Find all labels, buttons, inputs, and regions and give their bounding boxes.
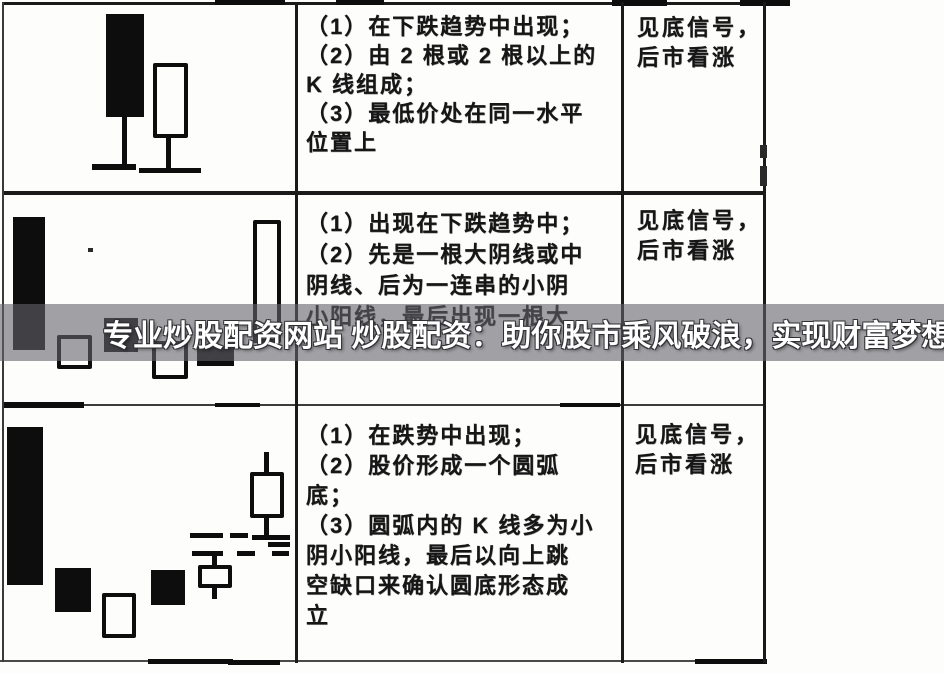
text-line: 阴线、后为一连串的小阴	[306, 270, 621, 301]
text-line: （3）圆弧内的 K 线多为小	[306, 511, 621, 541]
candle-wick	[264, 518, 269, 535]
text-line: 后市看涨	[637, 236, 777, 266]
row3-signal-cell: 见底信号，后市看涨	[635, 420, 775, 480]
white-candle	[102, 593, 136, 638]
scanned-candlestick-table-page: （1）在下跌趋势中出现；（2）由 2 根或 2 根以上的K 线组成；（3）最低价…	[0, 0, 944, 673]
white-candle	[198, 565, 232, 588]
gap-dash	[268, 542, 290, 547]
candle-wick	[264, 452, 269, 473]
black-candle	[106, 14, 144, 117]
watermark-text: 专业炒股配资网站 炒股配资：助你股市乘风破浪，实现财富梦想	[103, 311, 944, 355]
text-line: K 线组成；	[306, 70, 621, 99]
text-line: （1）出现在下跌趋势中；	[306, 208, 621, 239]
text-line: 后市看涨	[637, 43, 777, 73]
row3-conditions-cell: （1）在跌势中出现；（2）股价形成一个圆弧底；（3）圆弧内的 K 线多为小阴小阳…	[306, 421, 621, 631]
gap-dash	[237, 551, 255, 556]
watermark-banner: 专业炒股配资网站 炒股配资：助你股市乘风破浪，实现财富梦想	[0, 304, 944, 361]
gap-dash	[192, 551, 223, 556]
black-candle	[55, 568, 91, 612]
black-candle	[151, 570, 185, 605]
text-line: 阴小阳线，最后以向上跳	[306, 541, 621, 571]
gap-dash	[272, 551, 289, 556]
row1-conditions-cell: （1）在下跌趋势中出现；（2）由 2 根或 2 根以上的K 线组成；（3）最低价…	[306, 12, 621, 157]
text-line: 见底信号，	[637, 206, 777, 236]
white-candle	[250, 472, 284, 518]
text-line: （2）股价形成一个圆弧	[306, 451, 621, 481]
white-candle	[153, 63, 188, 138]
candle-wick	[212, 588, 217, 599]
gap-dash	[190, 533, 223, 538]
text-line: 底；	[306, 481, 621, 511]
text-line: （1）在下跌趋势中出现；	[306, 12, 621, 41]
row1-signal-cell: 见底信号，后市看涨	[637, 13, 777, 73]
gap-dash	[139, 168, 201, 173]
gap-dash	[252, 535, 290, 540]
text-line: 见底信号，	[635, 420, 775, 450]
text-line: 位置上	[306, 128, 621, 157]
text-line: 后市看涨	[635, 450, 775, 480]
text-line: 立	[306, 601, 621, 631]
text-line: （2）先是一根大阴线或中	[306, 239, 621, 270]
text-line: 空缺口来确认圆底形态成	[306, 571, 621, 601]
row2-signal-cell: 见底信号，后市看涨	[637, 206, 777, 266]
text-line: （2）由 2 根或 2 根以上的	[306, 41, 621, 70]
text-line: 见底信号，	[637, 13, 777, 43]
gap-dash	[92, 164, 136, 170]
gap-dash	[230, 533, 248, 538]
text-line: （1）在跌势中出现；	[306, 421, 621, 451]
black-candle	[7, 427, 43, 585]
text-line: （3）最低价处在同一水平	[306, 99, 621, 128]
candle-wick	[166, 136, 171, 169]
candle-wick	[122, 115, 127, 168]
